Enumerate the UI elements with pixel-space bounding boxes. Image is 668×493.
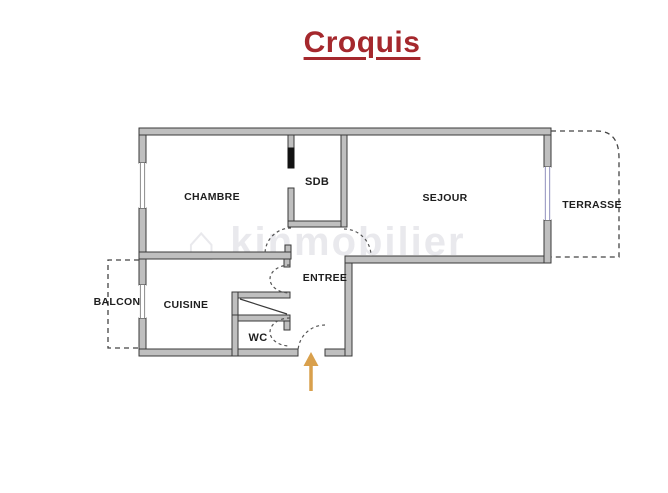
wall: [341, 135, 347, 227]
entrance-arrow-icon: [304, 352, 319, 391]
wall: [139, 208, 146, 285]
room-label-cuisine: CUISINE: [164, 299, 209, 311]
room-label-entree: ENTREE: [303, 272, 347, 284]
door-swing-arcs: [265, 228, 371, 352]
wall: [288, 221, 347, 227]
wall: [345, 256, 352, 356]
room-label-sdb: SDB: [305, 176, 329, 188]
room-label-chambre: CHAMBRE: [184, 191, 240, 203]
interior-walls: [139, 135, 347, 356]
chambre-window: [139, 163, 146, 208]
room-label-sejour: SEJOUR: [423, 192, 468, 204]
wall: [232, 315, 290, 321]
wall: [139, 135, 146, 163]
room-label-wc: WC: [249, 332, 268, 344]
room-label-terrasse: TERRASSE: [562, 199, 622, 211]
floor-plan-drawing: CHAMBRE SDB SEJOUR TERRASSE BALCON CUISI…: [0, 0, 668, 493]
wall: [139, 128, 551, 135]
wall: [284, 321, 290, 330]
wall: [232, 292, 290, 298]
wall: [285, 245, 291, 252]
wall: [139, 349, 298, 356]
wall: [232, 315, 238, 356]
cuisine-door-arc: [270, 265, 290, 293]
wall: [544, 220, 551, 263]
floor-plan-sketch: ⌂ kinmobilier Croquis: [0, 0, 668, 493]
wall: [544, 135, 551, 167]
sejour-window: [544, 167, 551, 220]
wall: [288, 135, 294, 148]
sdb-door-leaf: [288, 148, 294, 168]
entrance-door-arc: [298, 325, 325, 352]
wall: [139, 252, 291, 259]
sejour-door-arc: [344, 229, 371, 256]
terrasse-boundary: [551, 131, 619, 257]
wall: [345, 256, 551, 263]
closet-diagonal: [240, 299, 287, 314]
room-label-balcon: BALCON: [94, 296, 141, 308]
wall: [284, 259, 290, 267]
